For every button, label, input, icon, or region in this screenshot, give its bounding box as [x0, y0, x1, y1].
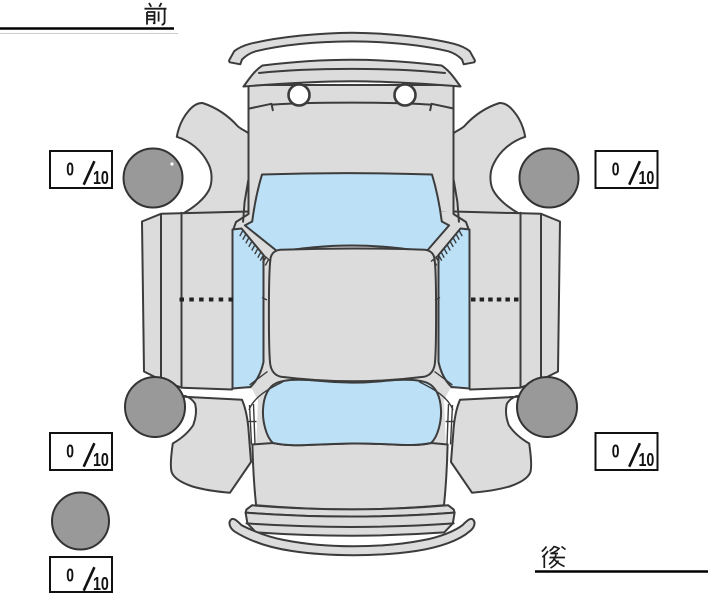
svg-text:10: 10	[93, 168, 109, 188]
svg-text:0: 0	[66, 160, 74, 180]
svg-text:10: 10	[639, 168, 655, 188]
svg-text:0: 0	[66, 566, 74, 586]
svg-text:10: 10	[639, 450, 655, 470]
svg-text:0: 0	[612, 442, 620, 462]
svg-text:10: 10	[93, 450, 109, 470]
svg-text:0: 0	[66, 442, 74, 462]
svg-text:10: 10	[93, 574, 109, 594]
svg-text:0: 0	[612, 160, 620, 180]
